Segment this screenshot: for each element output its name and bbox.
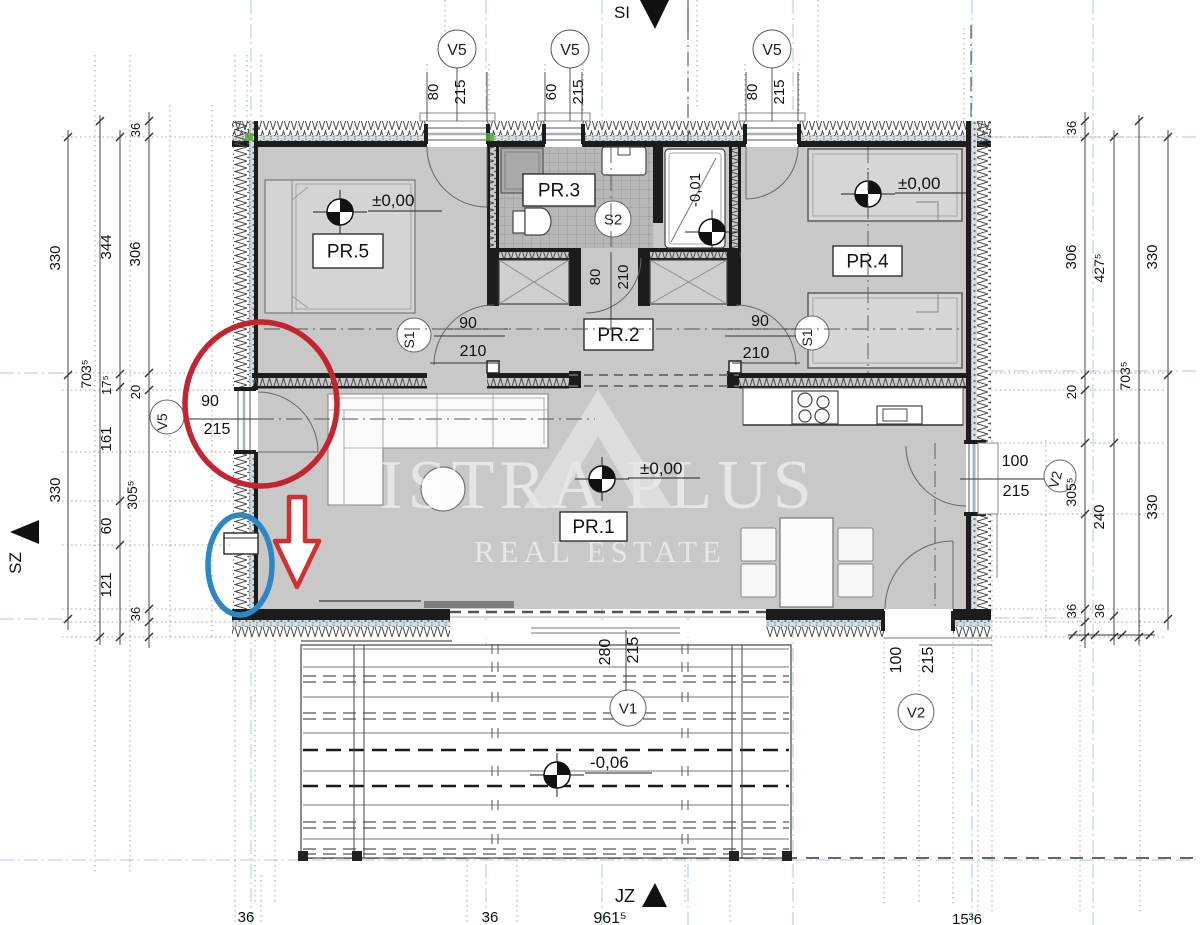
svg-text:703⁵: 703⁵ xyxy=(1117,361,1133,390)
svg-text:330: 330 xyxy=(47,477,64,502)
svg-text:210: 210 xyxy=(460,343,487,360)
svg-text:PR.1: PR.1 xyxy=(572,517,614,538)
svg-text:215: 215 xyxy=(771,79,788,104)
svg-text:±0,00: ±0,00 xyxy=(898,174,940,193)
svg-text:36: 36 xyxy=(1064,121,1079,135)
svg-text:17⁵: 17⁵ xyxy=(99,375,114,395)
svg-text:305⁵: 305⁵ xyxy=(1063,477,1079,506)
svg-text:20: 20 xyxy=(128,385,143,399)
svg-text:S2: S2 xyxy=(604,211,622,228)
svg-text:215: 215 xyxy=(625,637,642,664)
svg-text:344: 344 xyxy=(98,234,115,259)
svg-text:-0,01: -0,01 xyxy=(687,173,704,207)
svg-text:240: 240 xyxy=(1091,504,1108,529)
svg-text:330: 330 xyxy=(1144,244,1161,269)
svg-text:V5: V5 xyxy=(447,42,467,59)
svg-text:210: 210 xyxy=(615,264,632,289)
svg-text:36: 36 xyxy=(482,909,499,925)
svg-text:90: 90 xyxy=(751,313,769,330)
svg-text:280: 280 xyxy=(597,639,614,666)
svg-text:36: 36 xyxy=(238,909,255,925)
svg-text:15³6: 15³6 xyxy=(952,911,982,925)
svg-text:PR.5: PR.5 xyxy=(327,242,369,263)
svg-text:306: 306 xyxy=(1063,244,1080,269)
svg-text:90: 90 xyxy=(201,393,219,410)
svg-text:215: 215 xyxy=(1003,483,1030,500)
svg-text:305⁵: 305⁵ xyxy=(124,480,140,509)
svg-text:±0,00: ±0,00 xyxy=(372,191,414,210)
svg-text:20: 20 xyxy=(1064,385,1079,399)
svg-text:V2: V2 xyxy=(907,704,925,721)
svg-text:210: 210 xyxy=(743,345,770,362)
svg-text:S1: S1 xyxy=(799,329,815,346)
svg-text:PR.2: PR.2 xyxy=(597,325,639,346)
svg-text:330: 330 xyxy=(1144,494,1161,519)
svg-text:100: 100 xyxy=(888,647,905,674)
svg-text:161: 161 xyxy=(98,426,115,451)
svg-text:V5: V5 xyxy=(154,413,170,430)
svg-text:JZ: JZ xyxy=(615,886,635,906)
svg-text:100: 100 xyxy=(1002,453,1029,470)
svg-text:V1: V1 xyxy=(619,700,637,717)
svg-text:215: 215 xyxy=(452,79,469,104)
svg-text:330: 330 xyxy=(47,245,64,270)
svg-text:36: 36 xyxy=(1092,604,1107,618)
svg-text:215: 215 xyxy=(204,421,231,438)
svg-text:961⁵: 961⁵ xyxy=(593,910,626,925)
svg-text:121: 121 xyxy=(98,572,115,597)
svg-text:90: 90 xyxy=(459,315,477,332)
svg-text:80: 80 xyxy=(587,269,604,286)
svg-text:SZ: SZ xyxy=(6,552,25,574)
svg-text:-0,06: -0,06 xyxy=(590,753,629,772)
svg-text:60: 60 xyxy=(98,518,115,535)
svg-text:215: 215 xyxy=(920,647,937,674)
svg-text:80: 80 xyxy=(744,84,761,101)
svg-text:306: 306 xyxy=(127,241,144,266)
svg-text:S1: S1 xyxy=(401,331,417,348)
svg-text:V5: V5 xyxy=(560,42,580,59)
svg-text:SI: SI xyxy=(614,3,630,22)
svg-text:427⁵: 427⁵ xyxy=(1091,253,1107,282)
svg-text:36: 36 xyxy=(1064,604,1079,618)
svg-text:80: 80 xyxy=(425,84,442,101)
svg-text:36: 36 xyxy=(128,123,143,137)
svg-text:±0,00: ±0,00 xyxy=(640,459,682,478)
svg-text:703⁵: 703⁵ xyxy=(78,359,94,388)
svg-text:215: 215 xyxy=(570,79,587,104)
svg-text:60: 60 xyxy=(543,84,560,101)
svg-text:PR.3: PR.3 xyxy=(538,181,580,202)
svg-text:V5: V5 xyxy=(762,42,782,59)
